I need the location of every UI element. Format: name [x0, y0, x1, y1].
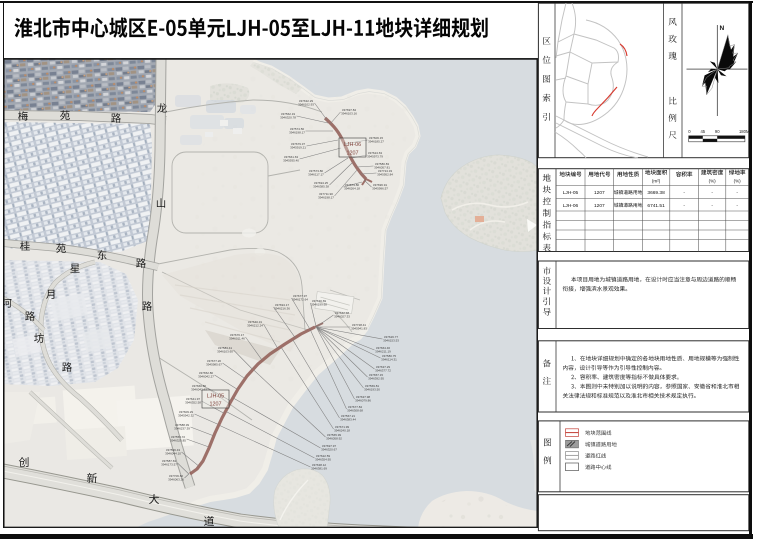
- svg-text:(m²): (m²): [652, 179, 661, 184]
- svg-text:1207: 1207: [594, 190, 605, 196]
- svg-text:N: N: [720, 25, 725, 32]
- svg-text:45: 45: [700, 129, 705, 134]
- svg-text:(%): (%): [734, 179, 742, 184]
- svg-text:1207: 1207: [594, 203, 605, 209]
- svg-text:(%): (%): [709, 179, 717, 184]
- svg-text:LJH-06: LJH-06: [563, 203, 579, 209]
- svg-text:3669.38: 3669.38: [647, 190, 665, 196]
- svg-text:6741.51: 6741.51: [647, 203, 665, 209]
- svg-text:90: 90: [715, 129, 720, 134]
- svg-text:LJH-05: LJH-05: [563, 190, 579, 196]
